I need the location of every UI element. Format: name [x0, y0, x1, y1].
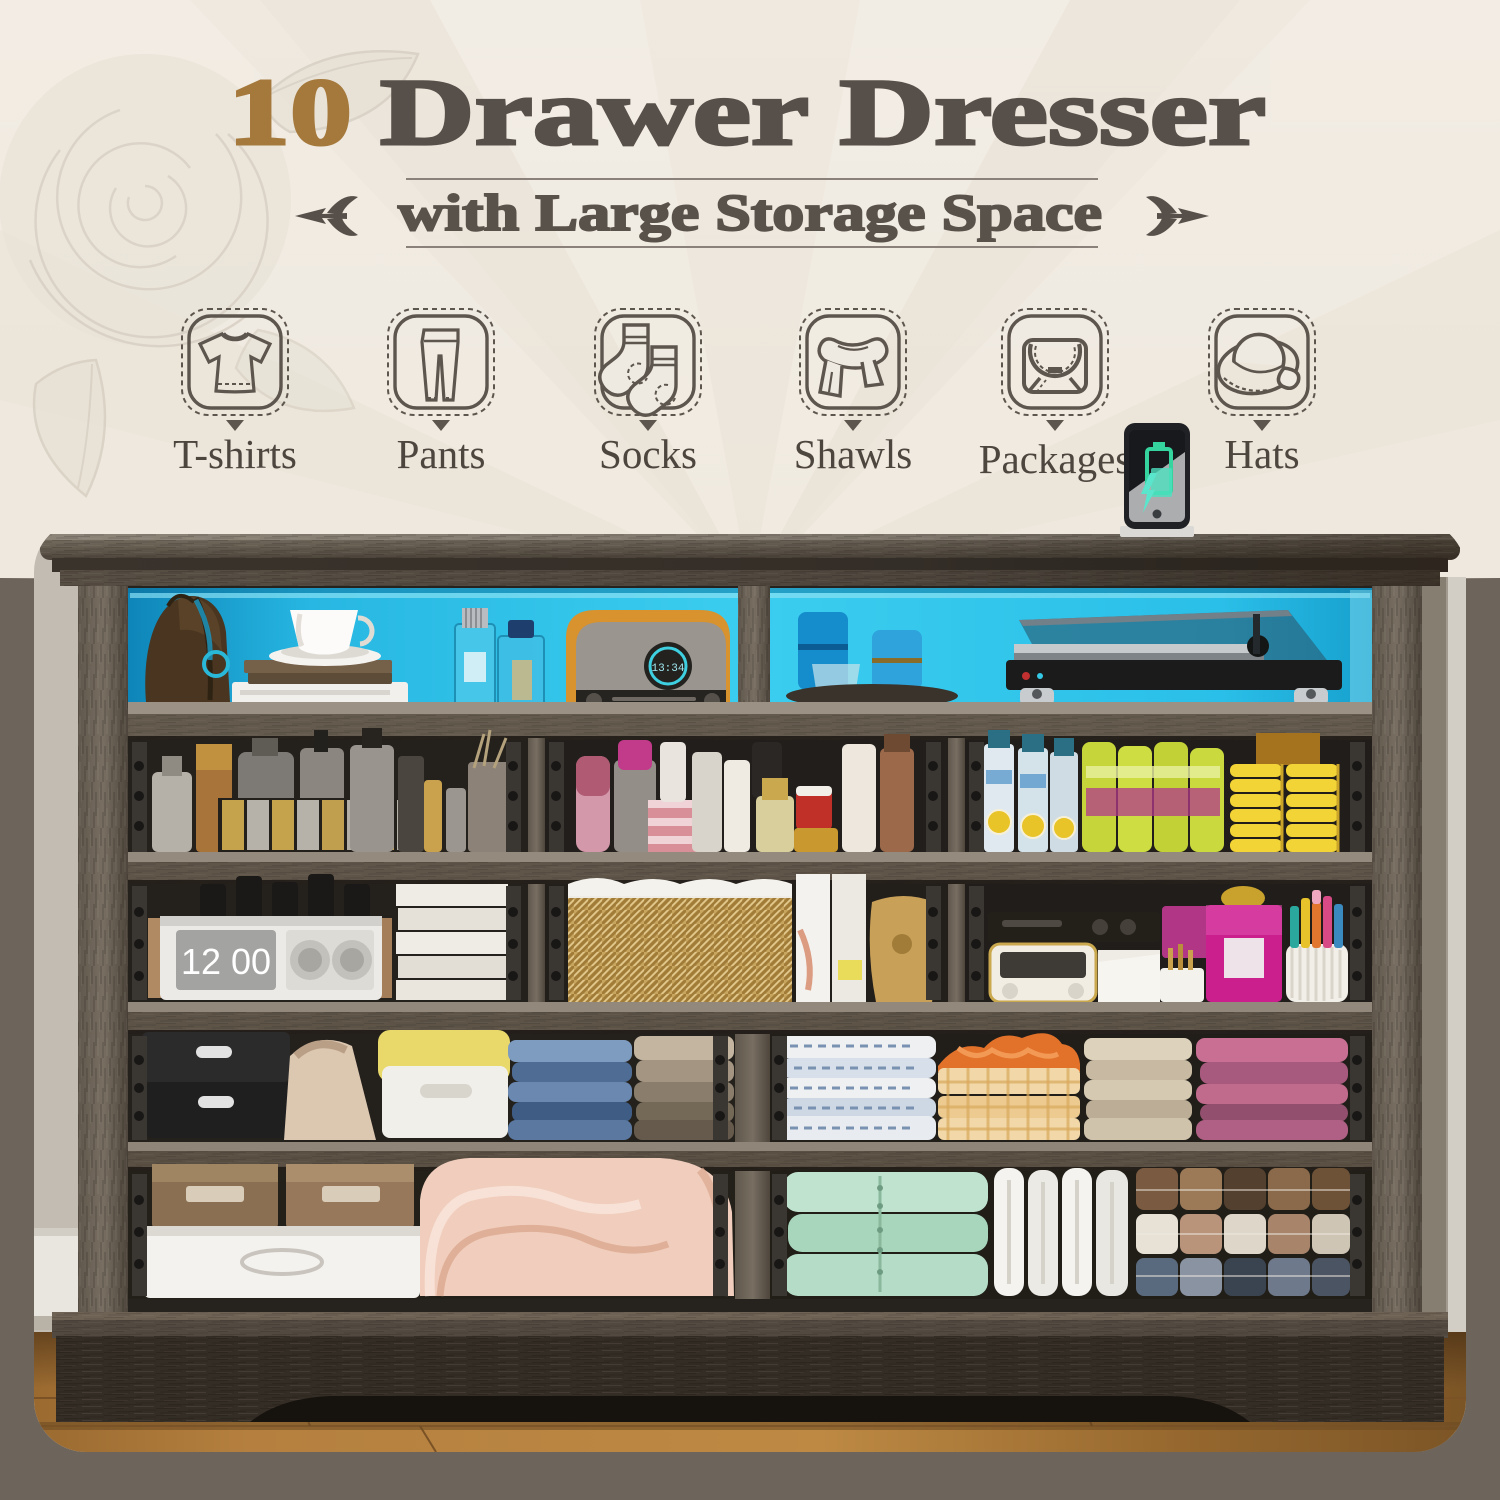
svg-text:Drawer Dresser: Drawer Dresser — [380, 59, 1266, 165]
svg-text:T-shirts: T-shirts — [173, 431, 297, 477]
svg-text:Hats: Hats — [1224, 431, 1299, 477]
svg-text:Pants: Pants — [397, 431, 486, 477]
svg-text:Shawls: Shawls — [794, 431, 912, 477]
svg-text:10: 10 — [228, 59, 352, 165]
svg-text:13:34: 13:34 — [651, 663, 684, 675]
svg-text:with Large Storage Space: with Large Storage Space — [398, 185, 1102, 242]
svg-text:12 00: 12 00 — [181, 941, 271, 982]
svg-text:Socks: Socks — [599, 431, 697, 477]
svg-text:Packages: Packages — [979, 436, 1132, 482]
